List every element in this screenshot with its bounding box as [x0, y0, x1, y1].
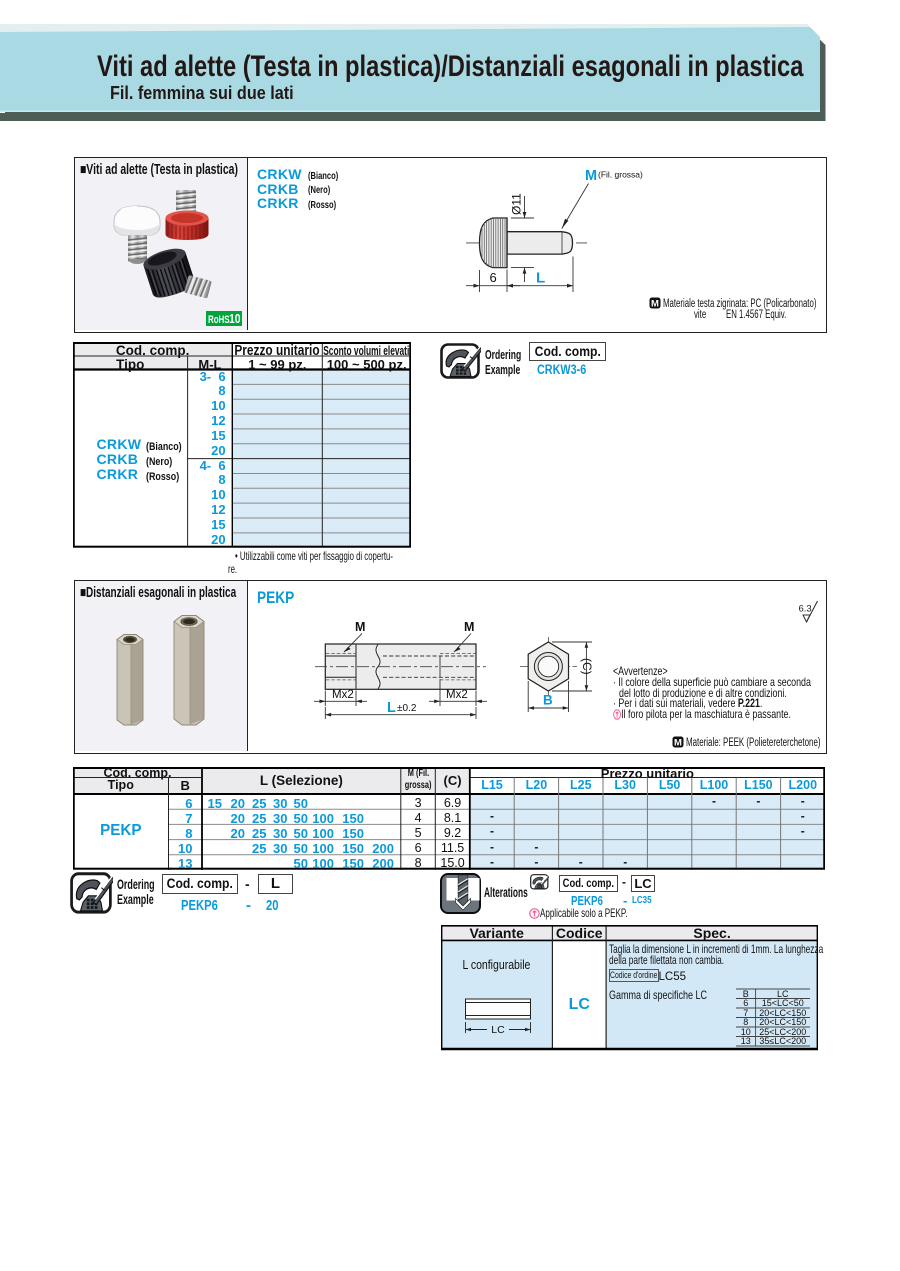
- svg-text:±0.2: ±0.2: [397, 703, 417, 714]
- svg-text:Mx2: Mx2: [446, 689, 468, 701]
- svg-text:6: 6: [490, 270, 497, 285]
- svg-text:M: M: [355, 620, 365, 634]
- svg-text:B: B: [543, 693, 553, 708]
- svg-text:Mx2: Mx2: [332, 689, 354, 701]
- svg-text:6.3: 6.3: [799, 604, 812, 615]
- svg-text:M: M: [585, 168, 597, 184]
- svg-text:(C): (C): [580, 658, 594, 675]
- svg-text:M: M: [464, 620, 474, 634]
- svg-text:L: L: [536, 270, 545, 287]
- svg-text:M: M: [651, 299, 659, 310]
- svg-text:M: M: [674, 738, 682, 749]
- svg-text:L: L: [387, 700, 396, 716]
- svg-text:Ø11: Ø11: [510, 193, 524, 215]
- svg-text:(Fil. grossa): (Fil. grossa): [598, 170, 643, 180]
